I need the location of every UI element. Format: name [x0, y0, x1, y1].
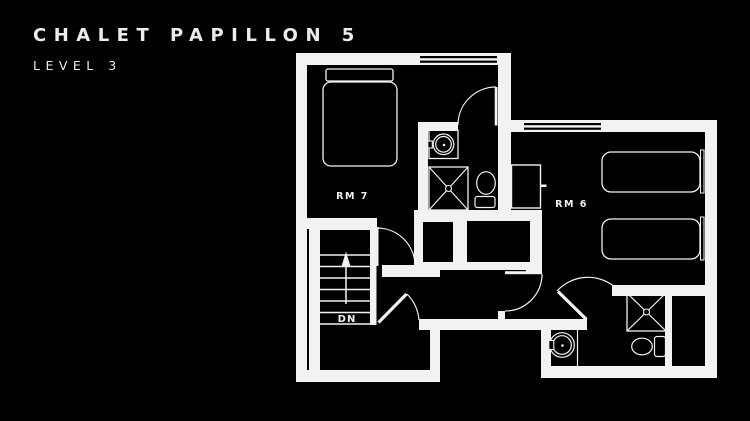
door-stair-corridor [379, 294, 420, 323]
door-bathroom2 [557, 277, 616, 319]
toilet-bowl [477, 172, 496, 195]
toilet-tank [655, 337, 666, 357]
floorplan-page: CHALET PAPILLON 5 LEVEL 3 [0, 0, 750, 421]
door-swing [407, 294, 419, 320]
toilet-2 [632, 337, 666, 357]
shower-1 [429, 167, 468, 210]
toilet-bowl [632, 338, 653, 355]
wall-top-left-block [296, 53, 510, 65]
closet-opening-1 [423, 222, 453, 262]
door-swing [458, 87, 496, 125]
rm6-closet [512, 165, 547, 208]
door-leaf [558, 292, 587, 320]
door-leaf [505, 271, 542, 274]
bed-headboard [701, 217, 705, 260]
bathroom1 [428, 130, 496, 210]
drain [644, 309, 650, 315]
rm7-double-bed [323, 69, 397, 166]
door-leaf [495, 87, 498, 126]
wall-top-rm6 [508, 120, 717, 132]
stairs: DN [320, 252, 370, 326]
faucet [428, 141, 433, 148]
room-label-rm7: RM 7 [336, 191, 369, 202]
stair-wall-gap [307, 229, 309, 370]
bed-body [323, 82, 397, 166]
floorplan-drawing: DN [0, 0, 750, 421]
wall-door-jamb-stub [498, 311, 505, 320]
bed-body [602, 219, 700, 259]
door-swing [505, 274, 542, 311]
door-rm7-landing [376, 227, 415, 266]
wall-stair-east [370, 227, 377, 325]
wall-hallway-south [419, 319, 587, 330]
wall-left [296, 53, 307, 382]
wall-bathroom1-west [418, 122, 428, 220]
bed-headboard [701, 150, 705, 193]
walls [296, 53, 717, 382]
door-swing [557, 277, 616, 291]
wall-stair-west [309, 227, 320, 370]
wall-bottom-left [296, 370, 440, 382]
closet-opening-2 [467, 221, 530, 262]
faucet [549, 341, 554, 350]
bed-pillow [326, 69, 393, 81]
door-leaf [376, 227, 379, 266]
door-leaf [379, 294, 407, 323]
door-rm7-ensuite [458, 87, 498, 126]
sink-1 [428, 130, 458, 159]
door-swing [377, 228, 415, 266]
toilet-tank [475, 197, 495, 208]
drain [446, 186, 452, 192]
wall-corridor-stub [430, 330, 440, 376]
rm6-single-bed-2 [602, 217, 704, 260]
wall-bottom-right [541, 366, 717, 378]
wall-right [705, 120, 717, 378]
wall-stair-top-edge [309, 227, 377, 230]
bed-body [602, 152, 700, 192]
closet-handle [541, 185, 547, 188]
stairs-dn-label: DN [338, 314, 357, 325]
shower-2 [627, 293, 666, 331]
rm6-single-bed-1 [602, 150, 704, 193]
toilet-1 [475, 172, 495, 208]
sink-2 [549, 330, 578, 366]
door-rm6 [505, 271, 542, 311]
room-label-rm6: RM 6 [555, 199, 588, 210]
